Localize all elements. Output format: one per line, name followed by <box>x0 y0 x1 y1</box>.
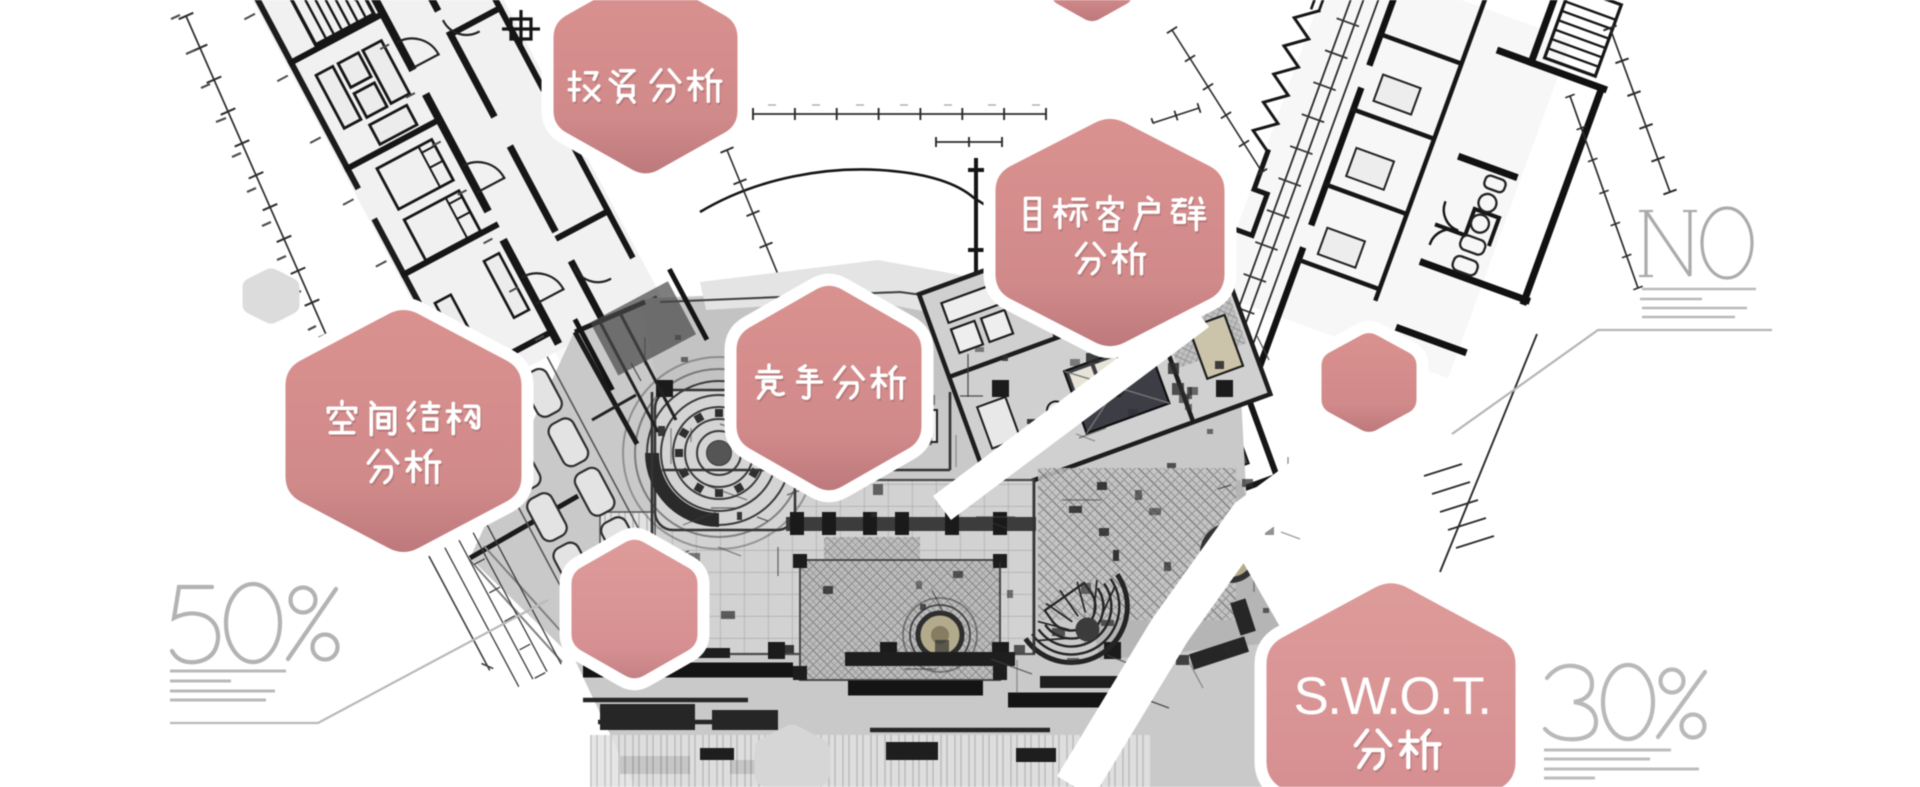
svg-text:S.W.O.T.: S.W.O.T. <box>1293 667 1490 726</box>
